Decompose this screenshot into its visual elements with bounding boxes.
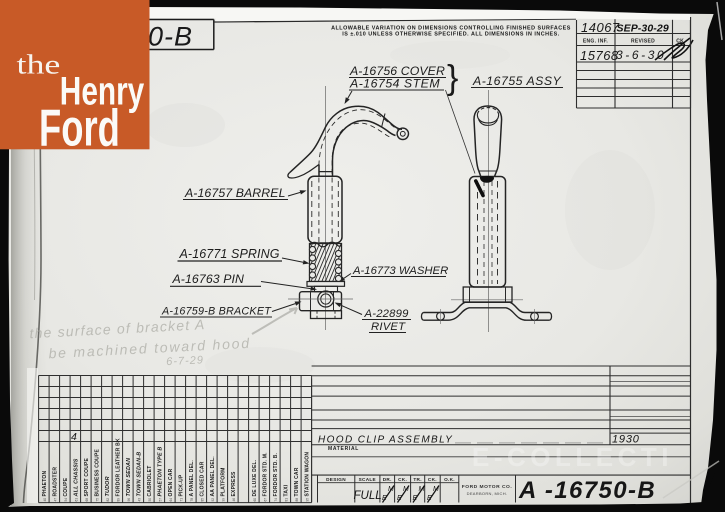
svg-text:E: E [427,495,432,502]
svg-text:M: M [419,486,425,493]
svg-text:78: 78 [190,498,194,502]
svg-text:60: 60 [253,498,257,502]
svg-text:47: 47 [54,498,58,502]
svg-text:E: E [382,495,387,502]
svg-text:OPEN CAR: OPEN CAR [168,468,174,496]
svg-text:FORD MOTOR CO.: FORD MOTOR CO. [462,484,513,490]
svg-text:TOWN SEDAN: TOWN SEDAN [126,458,132,497]
svg-text:96: 96 [127,498,131,502]
svg-text:E: E [397,495,402,502]
svg-text:81: 81 [285,498,289,502]
svg-text:67: 67 [264,498,268,502]
svg-text:E: E [413,495,418,502]
svg-text:BUSINESS COUPE: BUSINESS COUPE [95,449,101,497]
svg-text:A-16754 STEM: A-16754 STEM [349,76,440,90]
svg-text:STATION WAGON: STATION WAGON [305,452,311,497]
svg-text:68: 68 [85,498,89,502]
svg-text:IS ±.010 UNLESS OTHERWISE SPEC: IS ±.010 UNLESS OTHERWISE SPECIFIED. ALL… [342,31,559,37]
svg-text:PLATFORM: PLATFORM [221,467,227,496]
svg-text:PHAETON TYPE B: PHAETON TYPE B [158,446,164,496]
svg-text:Ford: Ford [39,98,120,157]
svg-text:MATERIAL: MATERIAL [328,446,359,452]
svg-text:M: M [403,486,409,493]
svg-text:FULL: FULL [354,490,382,502]
svg-text:95: 95 [306,498,310,502]
svg-text:CK.: CK. [428,477,437,482]
svg-text:40: 40 [43,498,47,502]
svg-text:ALL CHASSIS: ALL CHASSIS [74,458,80,497]
svg-text:61: 61 [75,498,79,502]
svg-text:the: the [17,50,61,80]
svg-text:CABRIOLET: CABRIOLET [147,466,153,497]
svg-text:89: 89 [117,498,121,502]
svg-text:ROADSTER: ROADSTER [53,467,59,497]
svg-text:RIVET: RIVET [371,321,406,333]
svg-text:A-16757 BARREL: A-16757 BARREL [184,186,286,200]
svg-text:CK.: CK. [398,477,407,482]
svg-text:50: 50 [148,498,152,502]
svg-text:TAXI: TAXI [284,484,290,496]
svg-text:TOWN CAR: TOWN CAR [294,467,300,496]
svg-text:A PANEL DEL.: A PANEL DEL. [189,460,195,497]
svg-text:ENG. INF.: ENG. INF. [583,39,609,45]
svg-text:3-6-30: 3-6-30 [616,48,666,62]
svg-text:64: 64 [169,498,173,502]
svg-text:SEP-30-29: SEP-30-29 [617,23,669,35]
svg-text:EXPRESS: EXPRESS [231,471,237,496]
svg-text:O.K.: O.K. [444,477,455,482]
svg-text:6-7-29: 6-7-29 [166,354,204,368]
svg-text:M: M [388,486,394,493]
svg-text:A-16759-B BRACKET: A-16759-B BRACKET [161,305,272,317]
svg-text:}: } [447,59,458,97]
svg-text:CLOSED CAR: CLOSED CAR [200,461,206,496]
svg-text:SPORT COUPE: SPORT COUPE [84,457,90,496]
svg-text:A-16771 SPRING: A-16771 SPRING [179,247,280,261]
svg-text:DE LUXE DEL.: DE LUXE DEL. [252,459,258,496]
svg-text:FORDOR STD. M.: FORDOR STD. M. [263,452,269,497]
svg-text:COUPE: COUPE [63,477,69,496]
svg-text:57: 57 [159,498,163,502]
svg-text:43: 43 [138,498,142,502]
svg-text:M: M [433,486,439,493]
svg-text:74: 74 [274,498,278,502]
svg-text:15768: 15768 [580,48,619,63]
svg-text:TUDOR: TUDOR [105,476,111,496]
svg-text:DESIGN: DESIGN [326,477,346,482]
svg-text:FORDOR STD. B.: FORDOR STD. B. [273,452,279,496]
svg-text:A-16773 WASHER: A-16773 WASHER [352,265,448,277]
svg-text:AA PANEL DEL.: AA PANEL DEL. [210,456,216,497]
svg-text:HOOD CLIP ASSEMBLY: HOOD CLIP ASSEMBLY [318,434,453,445]
svg-text:E-COLLECTI: E-COLLECTI [472,442,673,472]
svg-text:DEARBORN, MICH.: DEARBORN, MICH. [467,491,508,496]
svg-text:75: 75 [96,498,100,502]
svg-text:A-16755 ASSY: A-16755 ASSY [472,74,562,88]
svg-text:A -16750-B: A -16750-B [518,477,656,504]
svg-text:54: 54 [64,498,68,502]
svg-text:0-B: 0-B [148,22,193,52]
svg-text:82: 82 [106,498,110,502]
svg-text:PICK-UP: PICK-UP [179,474,185,496]
svg-text:PHAETON: PHAETON [42,471,48,497]
svg-text:4: 4 [71,431,77,443]
svg-text:A-22899: A-22899 [364,308,410,320]
svg-text:85: 85 [201,498,205,502]
svg-text:92: 92 [211,498,215,502]
svg-text:14067: 14067 [581,20,620,35]
svg-text:SCALE: SCALE [359,477,376,482]
svg-text:TOWN SEDAN-B: TOWN SEDAN-B [137,452,143,497]
svg-text:99: 99 [222,498,226,502]
svg-text:TR.: TR. [413,477,421,482]
svg-text:A-16763 PIN: A-16763 PIN [172,272,245,286]
svg-text:FORDOR LEATHER BK: FORDOR LEATHER BK [116,438,122,496]
svg-text:REVISED: REVISED [631,39,655,45]
svg-text:71: 71 [180,498,184,502]
svg-text:DR.: DR. [383,477,392,482]
svg-text:46: 46 [232,498,236,502]
svg-text:88: 88 [295,498,299,502]
